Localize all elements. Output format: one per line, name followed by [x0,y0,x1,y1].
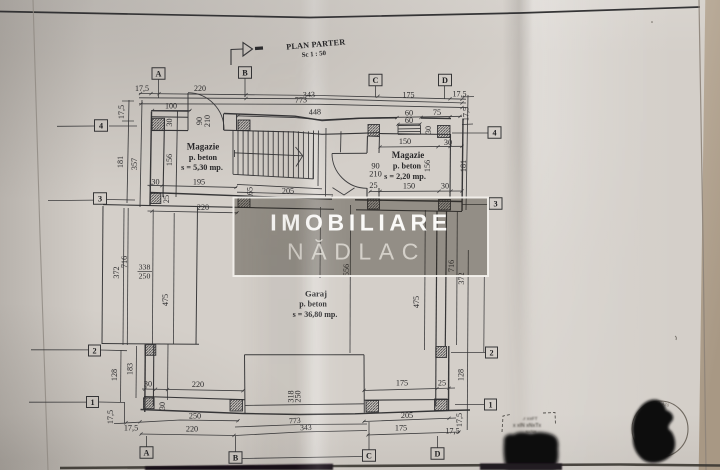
svg-text:181: 181 [459,160,468,172]
svg-text:183: 183 [126,363,135,375]
svg-text:448: 448 [309,107,322,116]
svg-text:30: 30 [441,182,449,191]
svg-text:s = 2,20 mp.: s = 2,20 mp. [384,172,426,181]
svg-text:210: 210 [369,170,382,179]
svg-text:220: 220 [194,84,206,93]
svg-text:Magazie: Magazie [187,142,219,152]
svg-text:338: 338 [139,263,151,272]
svg-text:75: 75 [433,108,441,117]
svg-text:C: C [366,452,372,461]
svg-text:s = 5,30 mp.: s = 5,30 mp. [181,163,223,172]
svg-text:p. beton: p. beton [393,162,422,171]
svg-text:210: 210 [203,115,212,127]
svg-text:220: 220 [197,203,209,212]
svg-text:B: B [242,69,248,78]
svg-text:60: 60 [405,116,413,125]
svg-text:175: 175 [396,379,408,388]
svg-text:150: 150 [403,182,415,191]
svg-text:Garaj: Garaj [305,289,327,299]
svg-text:1: 1 [90,398,94,407]
svg-text:2: 2 [92,347,96,356]
svg-text:128: 128 [457,369,466,381]
svg-text:175: 175 [395,424,407,433]
svg-text:D: D [435,450,441,459]
svg-text:17,5: 17,5 [117,105,126,119]
svg-text:220: 220 [186,425,198,434]
svg-text:p. beton: p. beton [299,300,327,309]
svg-text:65: 65 [246,187,255,195]
svg-text:156: 156 [165,154,174,166]
svg-text:343: 343 [300,423,312,432]
svg-text:156: 156 [423,160,432,172]
svg-text:.r xxFT: .r xxFT [522,416,537,421]
svg-text:2: 2 [489,349,493,358]
svg-text:IMOBILIARE: IMOBILIARE [270,210,451,236]
svg-text:17,5: 17,5 [455,413,464,427]
svg-text:s = 36,80 mp.: s = 36,80 mp. [293,310,338,319]
svg-text:17,5: 17,5 [106,410,115,424]
svg-text:A: A [144,449,150,458]
svg-text:250: 250 [139,272,151,281]
svg-text:100: 100 [165,102,177,111]
svg-text:205: 205 [401,411,413,420]
svg-text:250: 250 [294,390,303,402]
svg-text:150: 150 [399,137,411,146]
svg-text:475: 475 [412,296,421,308]
svg-text:181: 181 [116,156,125,168]
svg-text:1: 1 [488,401,492,410]
svg-text:30: 30 [165,118,174,126]
svg-text:17,5: 17,5 [124,424,138,433]
svg-text:220: 220 [192,380,204,389]
svg-text:30: 30 [144,380,152,389]
svg-text:25: 25 [369,181,377,190]
svg-text:195: 195 [193,177,205,186]
svg-text:716: 716 [120,256,129,268]
svg-text:Magazie: Magazie [392,150,424,160]
svg-text:A: A [156,70,162,79]
svg-text:30: 30 [151,177,159,186]
svg-text:C: C [373,76,379,85]
svg-text:175: 175 [403,90,415,99]
svg-text:D: D [442,76,448,85]
svg-text:25: 25 [438,379,446,388]
svg-text:30: 30 [424,126,433,134]
svg-text:4: 4 [492,129,496,138]
svg-text:3: 3 [493,200,497,209]
svg-text:p. beton: p. beton [189,153,218,162]
svg-text:NĂDLAC: NĂDLAC [287,239,426,265]
svg-text:773: 773 [295,95,308,104]
svg-text:475: 475 [161,294,170,306]
svg-text:17,5: 17,5 [135,84,149,93]
svg-text:25: 25 [162,195,171,203]
svg-text:B: B [233,454,239,463]
svg-text:128: 128 [110,369,119,381]
svg-text:PLAN PARTER: PLAN PARTER [286,37,346,51]
svg-text:3: 3 [98,195,102,204]
svg-text:30: 30 [158,402,167,410]
svg-text:4: 4 [99,122,103,131]
svg-text:250: 250 [189,411,201,420]
svg-text:357: 357 [130,158,139,170]
svg-text:205: 205 [282,187,294,196]
svg-text:Sc 1 : 50: Sc 1 : 50 [301,50,326,59]
